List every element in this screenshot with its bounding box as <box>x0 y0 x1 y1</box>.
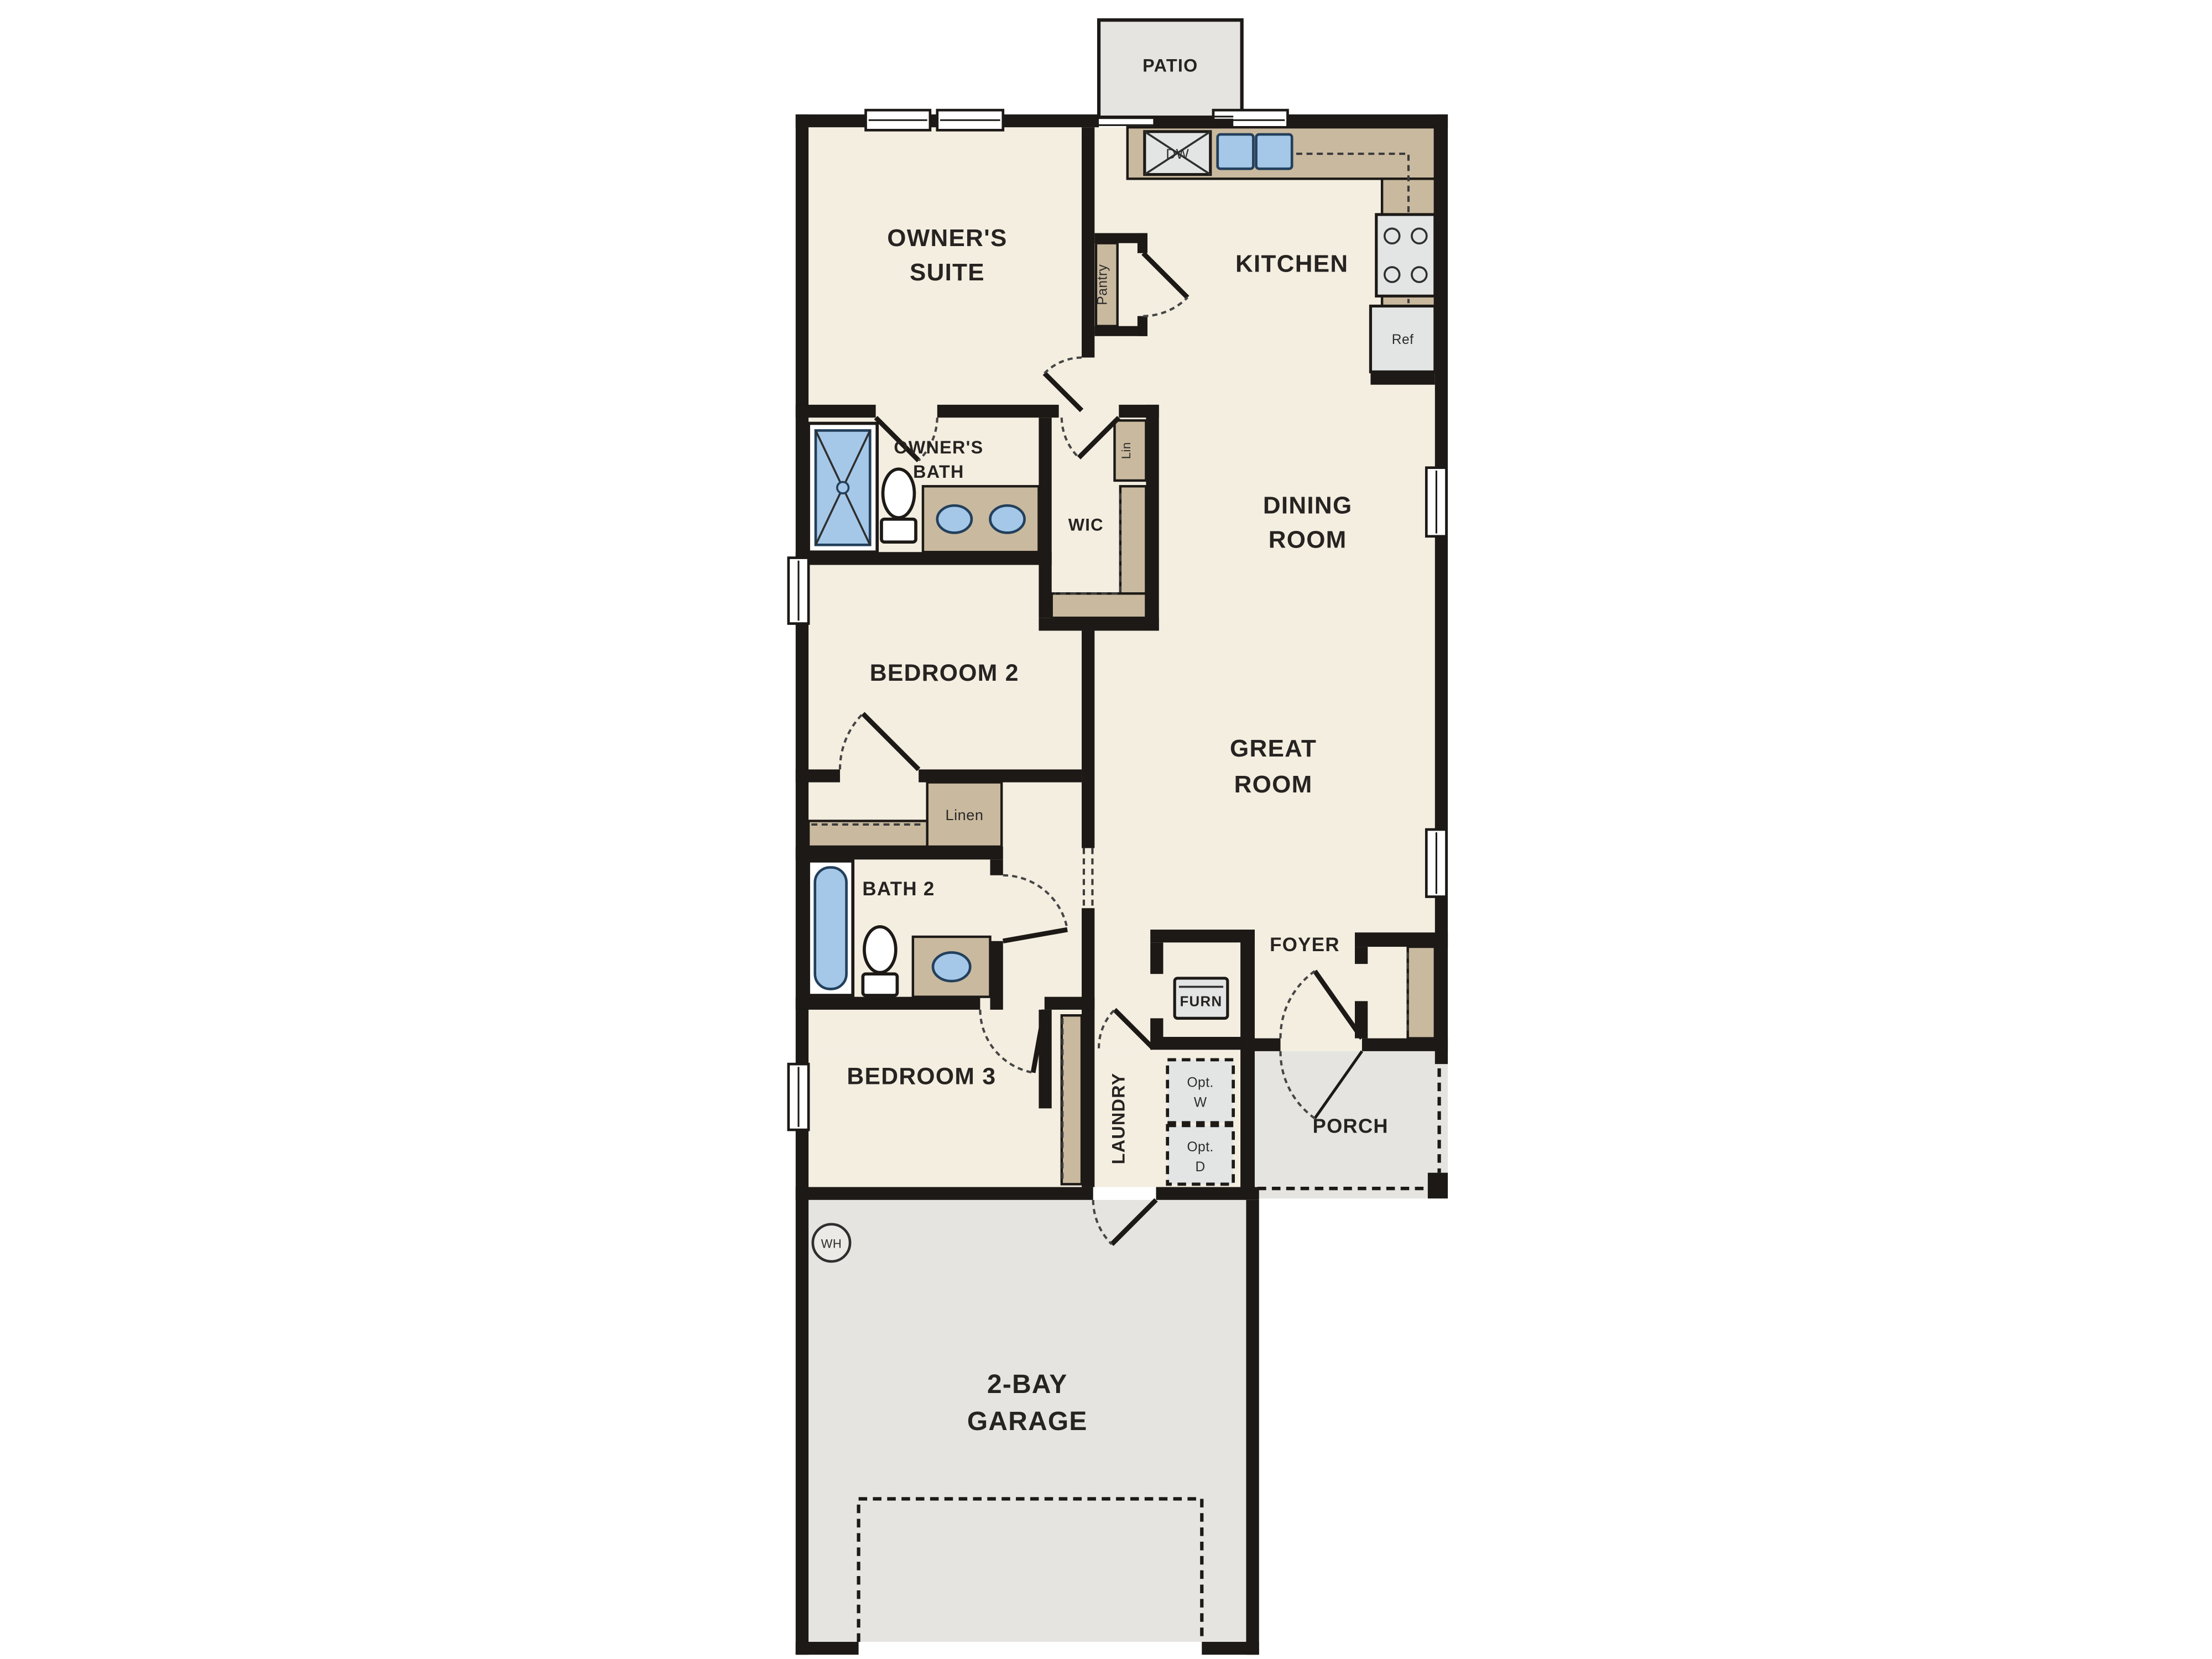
wall-bedroom2-greatroom <box>1082 631 1094 848</box>
sliding-door-panel <box>1153 119 1233 127</box>
wall-garage-top-b <box>1156 1187 1259 1200</box>
vanity-sink-right-icon <box>990 505 1025 533</box>
opt-dryer-box <box>1167 1125 1233 1184</box>
garage-label-1: 2-BAY <box>987 1370 1068 1399</box>
wall-wic-right <box>1146 405 1159 631</box>
wall-foyer-closet-stub-a <box>1355 947 1368 964</box>
floor-plan-canvas: PATIO OWNER'S SUITE KITCHEN DW Ref Pantr… <box>0 0 2212 1659</box>
linen-label: Linen <box>945 806 983 823</box>
great-room-label-2: ROOM <box>1234 771 1313 798</box>
wall-porch-corner <box>1428 1173 1448 1199</box>
shower-drain <box>837 482 849 494</box>
toilet2-tank-icon <box>863 974 897 995</box>
wall-bath2-right <box>990 941 1003 1010</box>
opt-washer-box <box>1167 1060 1233 1123</box>
wall-laundry-porch <box>1240 930 1255 1198</box>
water-heater-label: WH <box>821 1237 842 1250</box>
wall-bath2-right-stub <box>990 859 1003 875</box>
wall-foyer-closet-top <box>1355 932 1448 947</box>
wall-foyer-front-a <box>1255 1039 1281 1051</box>
wall-foyer-front-b <box>1362 1039 1448 1051</box>
patio-label: PATIO <box>1142 55 1198 75</box>
foyer-label: FOYER <box>1270 934 1340 956</box>
wall-ownersbath-top-a <box>796 405 876 418</box>
porch-label: PORCH <box>1313 1114 1389 1137</box>
dishwasher-label: DW <box>1166 147 1189 162</box>
toilet2-bowl-icon <box>864 927 896 973</box>
wall-bedroom2-bottom-a <box>796 769 840 782</box>
wall-hall-greatroom <box>1082 908 1094 1187</box>
dining-label-2: ROOM <box>1269 526 1347 554</box>
wall-wic-left <box>1039 418 1051 618</box>
wic-label: WIC <box>1068 515 1104 534</box>
bedroom2-label: BEDROOM 2 <box>870 660 1019 686</box>
lin-label: Lin <box>1119 442 1133 459</box>
wall-furn-top <box>1150 930 1255 942</box>
wall-garage-top-a <box>796 1187 1093 1200</box>
kitchen-label: KITCHEN <box>1235 250 1348 277</box>
wall-laundry-top <box>1150 1037 1255 1050</box>
wall-garage-right <box>1246 1200 1259 1655</box>
opt-dryer-label-2: D <box>1196 1160 1206 1175</box>
wall-pantry-stub-top <box>1138 233 1147 253</box>
wall-suite-kitchen <box>1082 127 1094 357</box>
wall-pantry-stub-bottom <box>1138 316 1147 336</box>
wall-ref-stub <box>1370 372 1434 384</box>
bath2-label: BATH 2 <box>862 878 935 900</box>
stove-icon <box>1376 215 1435 296</box>
sink-basin-left-icon <box>1218 134 1254 169</box>
toilet-tank-icon <box>881 519 916 542</box>
garage-label-2: GARAGE <box>967 1407 1088 1436</box>
refrigerator-label: Ref <box>1392 332 1414 347</box>
wall-bath2-top <box>796 847 1003 859</box>
owners-bath-label-1: OWNER'S <box>894 437 983 457</box>
wall-furn-left-a <box>1150 942 1163 974</box>
wall-ownersbath-top-b <box>937 405 1059 418</box>
floor-plan: PATIO OWNER'S SUITE KITCHEN DW Ref Pantr… <box>0 0 2212 1659</box>
wall-bedroom2-bottom-b <box>919 769 1082 782</box>
foyer-closet-shelf <box>1408 947 1435 1039</box>
wic-shelf-bottom <box>1052 593 1146 618</box>
toilet-bowl-icon <box>883 469 915 518</box>
bedroom3-closet-shelf <box>1062 1015 1082 1184</box>
wall-furn-left-b <box>1150 1018 1163 1037</box>
wall-garage-bottom-a <box>796 1642 859 1655</box>
sink-basin-right-icon <box>1256 134 1292 169</box>
bathtub-icon <box>815 868 847 989</box>
wall-wic-bottom <box>1039 618 1159 630</box>
owners-suite-label-2: SUITE <box>910 259 985 286</box>
wall-right-exterior <box>1435 114 1448 1064</box>
furnace-label: FURN <box>1180 994 1222 1009</box>
wall-garage-bottom-b <box>1202 1642 1259 1655</box>
great-room-label-1: GREAT <box>1230 735 1317 762</box>
wall-bath2-bottom <box>796 997 980 1010</box>
opt-washer-label-1: Opt. <box>1187 1076 1213 1091</box>
vanity2-sink-icon <box>933 952 970 981</box>
vanity-sink-left-icon <box>937 505 972 533</box>
laundry-label: LAUNDRY <box>1109 1072 1129 1164</box>
owners-suite-label-1: OWNER'S <box>887 225 1007 252</box>
opt-dryer-label-1: Opt. <box>1187 1140 1213 1155</box>
bedroom3-label: BEDROOM 3 <box>847 1063 996 1089</box>
opt-washer-label-2: W <box>1194 1095 1207 1110</box>
wall-ownersbath-bottom <box>796 552 1052 565</box>
pantry-label: Pantry <box>1095 264 1110 305</box>
wall-left-exterior <box>796 114 808 1655</box>
wall-hall-bottom <box>1045 997 1095 1010</box>
owners-bath-label-2: BATH <box>913 462 964 482</box>
dining-label-1: DINING <box>1263 492 1353 519</box>
